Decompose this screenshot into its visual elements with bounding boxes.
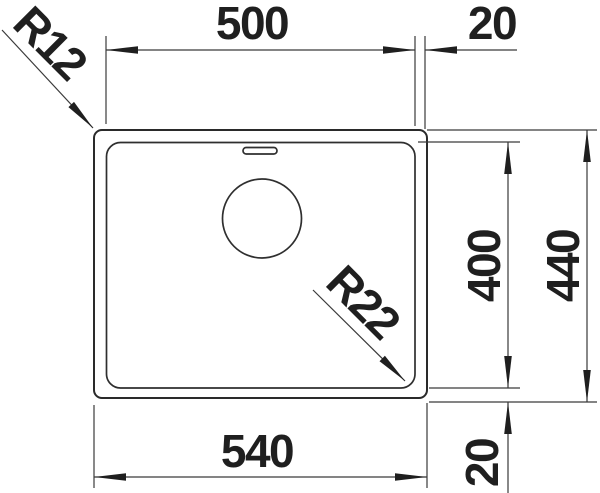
sink-body	[94, 130, 427, 398]
dimension-bowl-width: 500	[106, 0, 415, 126]
arrowhead-right	[395, 473, 427, 481]
arrowhead-down	[583, 370, 591, 402]
arrowhead-up	[504, 402, 512, 434]
dimension-bowl-depth: 400	[418, 142, 520, 388]
radius-label-outer: R12	[4, 0, 97, 89]
arrowhead-left	[425, 46, 457, 54]
dimension-label-overall-width: 540	[221, 425, 293, 477]
dimension-label-bottom-offset: 20	[456, 439, 508, 487]
dimension-bottom-offset: 20	[456, 402, 512, 493]
sink-outer-outline	[94, 130, 427, 398]
arrowhead-right	[383, 46, 415, 54]
arrowhead-corner	[380, 356, 406, 381]
arrowhead-left	[94, 473, 126, 481]
dimension-label-right-offset: 20	[468, 0, 516, 49]
radius-label-bowl: R22	[317, 255, 410, 348]
arrowhead-left	[106, 46, 138, 54]
arrowhead-corner	[68, 102, 93, 128]
arrowhead-down	[504, 356, 512, 388]
dimension-label-overall-depth: 440	[537, 230, 589, 302]
radius-callout-outer: R12	[2, 0, 97, 128]
drain-circle	[223, 179, 302, 258]
drawing-svg: 500 20 400 440	[0, 0, 600, 493]
sink-dimension-drawing: 500 20 400 440	[0, 0, 600, 493]
arrowhead-up	[504, 142, 512, 174]
overflow-slot	[243, 148, 277, 155]
dimension-overall-width: 540	[94, 403, 427, 488]
arrowhead-up	[583, 130, 591, 162]
radius-callout-bowl: R22	[313, 255, 410, 381]
dimension-label-bowl-depth: 400	[458, 230, 510, 302]
dimension-right-offset: 20	[425, 0, 517, 129]
dimension-overall-depth: 440	[427, 130, 597, 402]
dimension-label-bowl-width: 500	[216, 0, 288, 49]
